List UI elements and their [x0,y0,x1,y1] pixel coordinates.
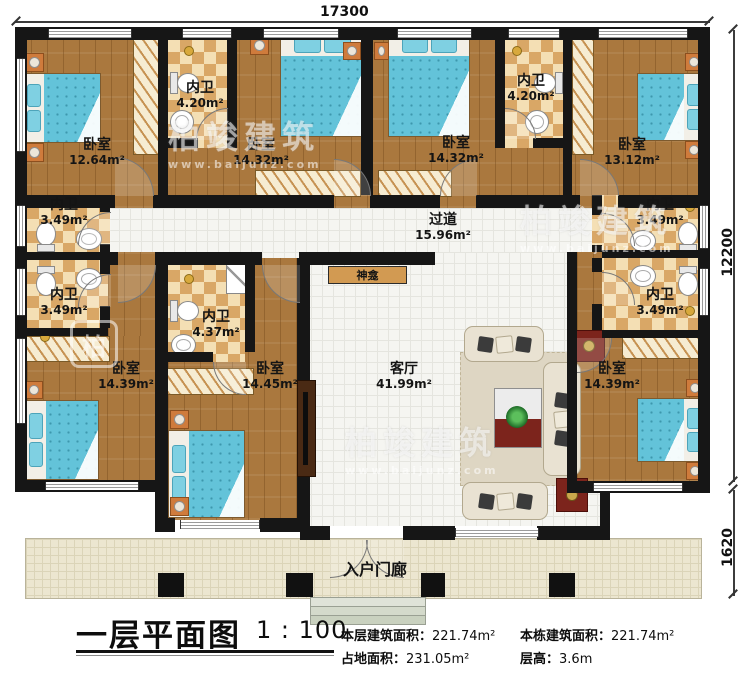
room-label-bath-t2: 内卫4.20m² [507,74,554,103]
wall-segment [403,526,455,540]
bed [637,73,705,141]
wall-segment [602,330,698,338]
wardrobe [133,33,160,155]
dimension-top: 17300 [320,4,369,20]
wall-segment [100,306,110,328]
wall-segment [299,252,435,265]
room-label-bath-l1: 内卫3.49m² [40,198,87,227]
window [455,528,539,537]
porch-pillar [549,573,575,597]
nightstand [170,410,189,429]
window [700,268,708,316]
window [508,29,560,38]
floor-plan-canvas: 神龛 卧室12.64m² 内卫4.20m² 卧室14.32m² 卧室14.32m… [0,0,750,674]
window [45,482,139,490]
shrine-label: 神龛 [357,267,379,283]
room-label-bedroom-bc: 卧室14.45m² [242,362,298,391]
stat-building-area: 本栋建筑面积：221.74m² [520,625,674,644]
wall-segment [567,252,577,330]
toilet-icon [37,244,55,252]
wall-segment [155,518,175,532]
plan-title: 一层平面图 [76,610,241,655]
wall-segment [100,244,110,252]
room-label-corridor: 过道15.96m² [415,213,471,242]
sink-icon [170,110,194,134]
shrine-shelf: 神龛 [328,266,407,284]
stat-floor-area: 本层建筑面积：221.74m² [341,625,495,644]
dimension-line [733,30,735,482]
wall-segment [168,138,198,148]
room-label-bath-l2: 内卫3.49m² [40,288,87,317]
room-label-bedroom-tr: 卧室13.12m² [604,138,660,167]
sofa [464,326,544,362]
wall-segment [537,526,610,540]
wall-segment [168,352,213,362]
wall-segment [15,328,108,336]
wall-segment [592,258,602,272]
dimension-line [733,490,735,596]
wall-right [698,27,710,483]
window [182,29,232,38]
nightstand [343,42,361,60]
plant-icon [506,406,528,428]
wardrobe [572,33,594,155]
wall-segment [300,526,330,540]
room-label-bath-r1: 内卫3.49m² [636,198,683,227]
bed [388,33,470,137]
room-label-bath-r2: 内卫3.49m² [636,288,683,317]
sofa [462,482,548,520]
room-label-bedroom-bl: 卧室14.39m² [98,362,154,391]
faucet-icon [512,46,522,56]
window [180,520,260,529]
faucet-icon [184,46,194,56]
porch-pillar [421,573,445,597]
room-label-bath-c: 内卫4.37m² [192,310,239,339]
stat-storey-height: 层高：3.6m [520,648,592,667]
window [48,29,132,38]
wall-segment [592,195,602,215]
window [700,205,708,249]
stat-footprint: 占地面积：231.05m² [341,648,469,667]
room-label-bedroom-t2: 卧室14.32m² [233,138,289,167]
wall-segment [153,195,334,208]
wall-segment [567,330,577,481]
room-label-bedroom-br: 卧室14.39m² [584,362,640,391]
bed [25,400,99,480]
wall-segment [158,27,168,195]
window [598,29,688,38]
wardrobe [622,336,700,359]
wall-segment [533,138,563,148]
wall-segment [361,27,373,195]
wall-segment [476,195,580,208]
tv-cabinet [297,380,316,477]
dimension-line [15,21,710,23]
room-label-porch: 入户门廊 [343,556,407,580]
room-label-bedroom-tl: 卧室12.64m² [69,138,125,167]
porch-pillar [286,573,313,597]
wall-segment [227,27,237,148]
sink-icon [630,265,656,287]
window [17,205,25,247]
wall-segment [563,27,572,195]
bed [23,73,101,143]
wall-segment [602,250,698,258]
faucet-icon [184,274,194,284]
window [397,29,472,38]
nightstand [25,381,43,399]
wall-segment [370,195,440,208]
room-label-bedroom-t3: 卧室14.32m² [428,136,484,165]
room-label-living: 客厅41.99m² [376,362,432,391]
wall-segment [100,260,110,274]
title-underline [76,655,334,656]
nightstand [25,143,44,162]
nightstand [170,497,189,516]
title-underline [76,650,334,653]
window [17,58,25,152]
wall-segment [592,304,602,330]
nightstand [374,42,389,60]
window [17,268,25,316]
faucet-icon [685,306,695,316]
porch-pillar [158,573,184,597]
toilet-icon [555,72,563,94]
window [17,338,25,424]
wall-segment [15,252,108,260]
wall-segment [245,258,255,352]
wardrobe [23,336,110,362]
window [593,483,683,491]
bed [637,398,705,462]
room-label-bath-t1: 内卫4.20m² [176,81,223,110]
wall-segment [495,27,505,148]
window [263,29,339,38]
plan-scale: 1 : 100 [256,616,347,644]
wall-segment [100,195,110,212]
wall-segment [592,245,602,252]
nightstand [25,53,44,72]
